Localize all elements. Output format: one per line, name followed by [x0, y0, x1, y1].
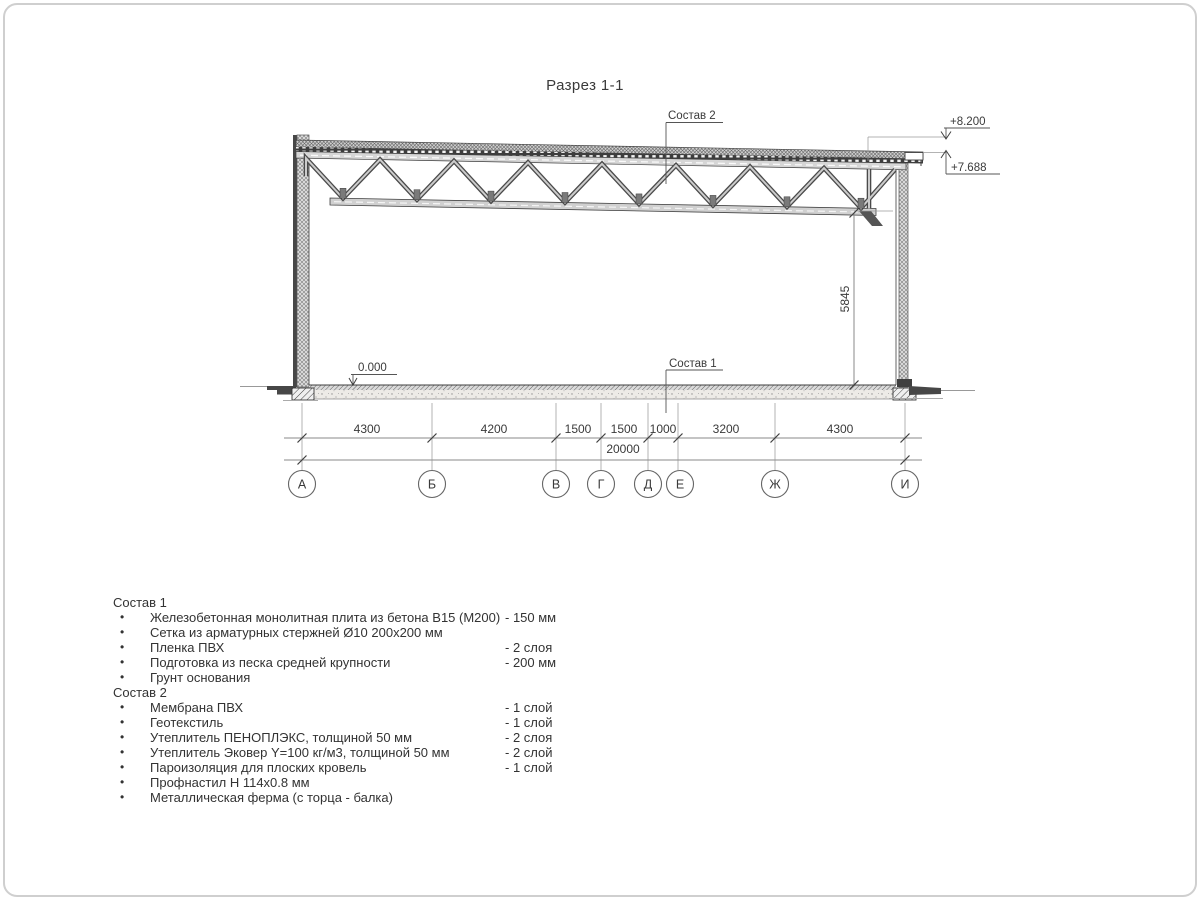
foundation-left — [240, 386, 318, 401]
roof-truss — [306, 158, 895, 226]
item-value: - 2 слой — [505, 745, 553, 760]
item-value: - 2 слоя — [505, 730, 552, 745]
sostav2-item-6: • Профнастил Н 114х0.8 мм — [113, 775, 613, 790]
level-mark-zero: 0.000 — [349, 362, 397, 385]
sostav2-item-2: • Геотекстиль - 1 слой — [113, 715, 613, 730]
sostav2-item-5: • Пароизоляция для плоских кровель - 1 с… — [113, 760, 613, 775]
bullet-icon: • — [120, 670, 124, 685]
bullet-icon: • — [120, 655, 124, 670]
foundation-right — [889, 386, 975, 400]
item-text: Утеплитель ПЕНОПЛЭКС, толщиной 50 мм — [150, 730, 412, 745]
level-mark-roof: +7.688 — [923, 151, 1000, 175]
axis-label-zh: Ж — [769, 478, 781, 492]
item-text: Подготовка из песка средней крупности — [150, 655, 390, 670]
item-text: Пароизоляция для плоских кровель — [150, 760, 367, 775]
bullet-icon: • — [120, 715, 124, 730]
dim-label-2: 4200 — [481, 422, 508, 436]
bullet-icon: • — [120, 700, 124, 715]
drawing-title: Разрез 1-1 — [546, 77, 624, 94]
item-value: - 1 слой — [505, 715, 553, 730]
bullet-icon: • — [120, 745, 124, 760]
dim-label-5: 1000 — [650, 422, 677, 436]
callout-sostav2-label: Состав 2 — [668, 110, 716, 122]
bullet-icon: • — [120, 790, 124, 805]
roof-edge-cap — [905, 153, 923, 161]
height-dimension: 5845 — [838, 209, 893, 390]
axis-label-v: В — [552, 478, 560, 492]
item-text: Грунт основания — [150, 670, 250, 685]
axis-label-a: А — [298, 478, 307, 492]
sostav1-item-1: • Железобетонная монолитная плита из бет… — [113, 610, 613, 625]
section-drawing: Разрез 1-1 — [0, 0, 1200, 560]
dimension-row-2: 20000 — [284, 442, 922, 465]
item-text: Сетка из арматурных стержней Ø10 200х200… — [150, 625, 443, 640]
item-value: - 1 слой — [505, 760, 553, 775]
bullet-icon: • — [120, 640, 124, 655]
floor-slab — [309, 385, 896, 399]
item-text: Утеплитель Эковер Y=100 кг/м3, толщиной … — [150, 745, 450, 760]
roof-assembly — [296, 140, 923, 170]
right-wall — [896, 163, 912, 387]
item-text: Железобетонная монолитная плита из бетон… — [150, 610, 500, 625]
dim-label-4: 1500 — [611, 422, 638, 436]
callout-sostav1-label: Состав 1 — [669, 358, 717, 370]
dim-label-6: 3200 — [713, 422, 740, 436]
item-text: Металлическая ферма (с торца - балка) — [150, 790, 393, 805]
sostav1-item-3: • Пленка ПВХ - 2 слоя — [113, 640, 613, 655]
axis-label-i: И — [901, 478, 910, 492]
axis-labels: А Б В Г Д Е Ж И — [298, 478, 910, 492]
dim-label-7: 4300 — [827, 422, 854, 436]
composition-legend: Состав 1 • Железобетонная монолитная пли… — [113, 595, 613, 805]
truss-end-support — [859, 211, 883, 226]
axis-label-d: Д — [644, 478, 653, 492]
item-value: - 2 слоя — [505, 640, 552, 655]
item-text: Профнастил Н 114х0.8 мм — [150, 775, 310, 790]
sostav1-header: Состав 1 — [113, 595, 613, 610]
item-value: - 1 слой — [505, 700, 553, 715]
dimension-row-1: 4300 4200 1500 1500 1000 3200 4300 — [284, 422, 922, 443]
dim-label-total: 20000 — [606, 442, 640, 456]
level-roof-label: +7.688 — [951, 162, 987, 174]
bullet-icon: • — [120, 775, 124, 790]
item-text: Геотекстиль — [150, 715, 223, 730]
sostav2-item-4: • Утеплитель Эковер Y=100 кг/м3, толщино… — [113, 745, 613, 760]
item-text: Пленка ПВХ — [150, 640, 224, 655]
level-zero-label: 0.000 — [358, 362, 387, 374]
sostav2-header: Состав 2 — [113, 685, 613, 700]
dim-label-3: 1500 — [565, 422, 592, 436]
item-value: - 150 мм — [505, 610, 556, 625]
height-dim-label: 5845 — [838, 285, 852, 312]
axis-label-b: Б — [428, 478, 436, 492]
dim-label-1: 4300 — [354, 422, 381, 436]
axis-label-e: Е — [676, 478, 684, 492]
bullet-icon: • — [120, 625, 124, 640]
sostav2-item-1: • Мембрана ПВХ - 1 слой — [113, 700, 613, 715]
sostav1-item-2: • Сетка из арматурных стержней Ø10 200х2… — [113, 625, 613, 640]
axis-label-g: Г — [598, 478, 605, 492]
bullet-icon: • — [120, 730, 124, 745]
sostav2-item-7: • Металлическая ферма (с торца - балка) — [113, 790, 613, 805]
item-value: - 200 мм — [505, 655, 556, 670]
level-top-label: +8.200 — [950, 116, 986, 128]
bullet-icon: • — [120, 760, 124, 775]
bullet-icon: • — [120, 610, 124, 625]
sostav1-item-4: • Подготовка из песка средней крупности … — [113, 655, 613, 670]
sostav2-item-3: • Утеплитель ПЕНОПЛЭКС, толщиной 50 мм -… — [113, 730, 613, 745]
sostav1-item-5: • Грунт основания — [113, 670, 613, 685]
item-text: Мембрана ПВХ — [150, 700, 243, 715]
